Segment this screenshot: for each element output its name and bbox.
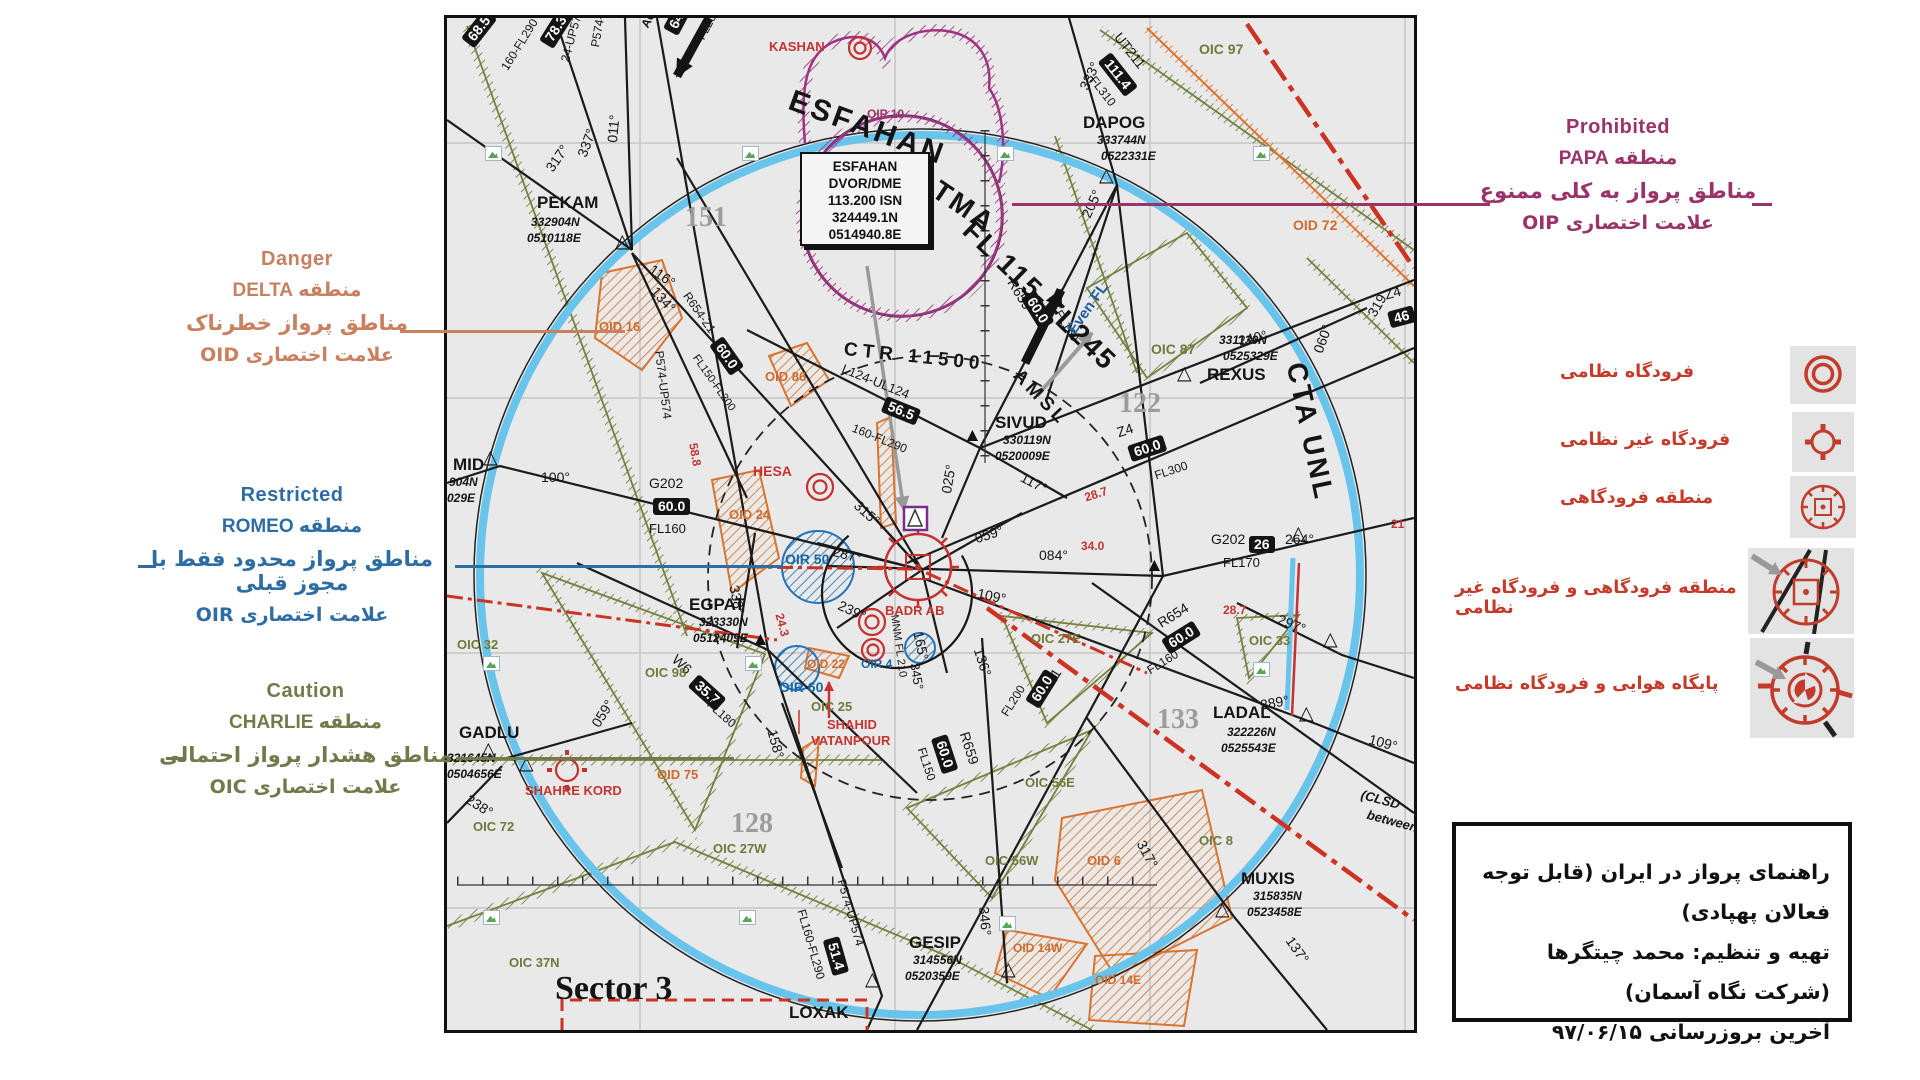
image-placeholder-glyph (1256, 667, 1266, 674)
map-label: 109° (1367, 732, 1399, 753)
annotation-abbr: علامت اختصاری OID (152, 344, 442, 366)
map-label: 28.7 (1083, 485, 1109, 504)
annotation-desc: مناطق پرواز به کلی ممنوع (1468, 179, 1768, 203)
map-label: 160-FL290 (851, 422, 909, 455)
annotation-title: Prohibited (1468, 116, 1768, 139)
map-label: OID 14W (1013, 942, 1062, 954)
map-label: 64.0 (663, 15, 695, 36)
map-label: 100° (541, 470, 570, 484)
map-label: 46 (1387, 305, 1416, 328)
map-label: G202 (1211, 532, 1245, 546)
map-label: OID 6 (1087, 854, 1121, 867)
map-label: 0520359E (905, 970, 960, 982)
map-label: OIC 25 (811, 700, 852, 713)
image-placeholder-glyph (745, 151, 755, 158)
map-label: 315° (852, 498, 883, 528)
map-label: 109° (976, 586, 1007, 606)
map-label: FL160-FL290 (795, 908, 826, 981)
image-placeholder-icon (483, 656, 500, 671)
image-placeholder-icon (485, 146, 502, 161)
map-label: 0525329E (1223, 350, 1278, 362)
map-label: 60.0 (709, 336, 744, 376)
pointer-line-restricted-tail (138, 565, 156, 568)
map-label: 025° (939, 463, 958, 494)
airbase-military-icon (1750, 638, 1854, 738)
waypoint-triangle: ▲ (751, 630, 770, 649)
map-label: LADAL (1213, 704, 1271, 721)
map-label: 0504656E (447, 768, 502, 780)
annotation-region: منطقه DELTA (152, 279, 442, 302)
map-label: 332904N (531, 216, 580, 228)
map-label: 122 (1119, 390, 1161, 418)
credits-line-1: راهنمای پرواز در ایران (قابل توجه فعالان… (1468, 852, 1830, 932)
map-label: EGPAT (689, 596, 745, 613)
navaid-lon: 0514940.8E (802, 226, 928, 243)
image-placeholder-glyph (488, 151, 498, 158)
map-label: Sector 3 (555, 972, 672, 1006)
map-label: 133 (1157, 706, 1199, 734)
map-label: 134° (649, 284, 679, 315)
map-label: 287° (831, 544, 863, 565)
map-label: OID 14E (1095, 974, 1141, 986)
credits-box: راهنمای پرواز در ایران (قابل توجه فعالان… (1452, 822, 1852, 1022)
map-label: OIC 72 (473, 820, 514, 833)
map-label: OID 24 (729, 508, 770, 521)
waypoint-triangle: △ (615, 232, 630, 251)
map-label: 34.0 (1081, 540, 1104, 552)
map-label: OID 22 (807, 658, 845, 670)
map-label: OIC 56W (985, 854, 1038, 867)
map-label: 21 (1391, 518, 1404, 530)
navaid-lat: 324449.1N (802, 209, 928, 226)
waypoint-triangle: △ (1291, 524, 1306, 543)
map-label: P574-R654 (589, 15, 611, 48)
map-label: OIC 8 (1199, 834, 1233, 847)
map-label: 158° (765, 728, 786, 760)
screenshot-page: 68.5160-FL29078.324-UP574P574-R654A6464.… (0, 0, 1920, 1080)
map-label: 160-FL290 (499, 17, 540, 73)
map-label: OIC 87 (1151, 342, 1195, 356)
map-label: 315835N (1253, 890, 1302, 902)
map-label: 060° (1311, 323, 1334, 355)
map-label: 60.0 (1025, 668, 1059, 709)
map-label: L124-UL124 (840, 362, 911, 401)
map-label: 58.8 (687, 442, 703, 467)
map-label: 345° (908, 662, 925, 691)
map-label: VATANPOUR (811, 734, 890, 747)
map-label: FL160 (649, 522, 686, 535)
annotation-title: Danger (152, 248, 442, 271)
map-label: SHAHID (827, 718, 877, 731)
map-label: A64 (639, 15, 660, 30)
map-label: OIC 32 (457, 638, 498, 651)
waypoint-triangle: △ (1177, 364, 1192, 383)
annotation-abbr: علامت اختصاری OIR (132, 604, 452, 626)
map-label: R654-Z1 (681, 290, 718, 335)
map-label: 239° (836, 598, 868, 623)
map-label: 0512409E (693, 632, 748, 644)
image-placeholder-glyph (748, 661, 758, 668)
map-label: SIVUD (995, 414, 1047, 431)
map-label: 26 (1249, 536, 1275, 553)
map-label: 330119N (1003, 434, 1051, 446)
pointer-line-caution-tail (166, 757, 186, 760)
waypoint-triangle: △ (865, 970, 880, 989)
credits-line-2: تهیه و تنظیم: محمد چیتگرها (شرکت نگاه آس… (1468, 932, 1830, 1012)
annotation-desc: مناطق پرواز محدود فقط با مجوز قبلی (132, 547, 452, 595)
map-label: OIC 33 (1249, 634, 1290, 647)
map-label: 904N (449, 476, 478, 488)
map-label: OID 86 (765, 370, 806, 383)
map-label: 346° (977, 906, 993, 936)
map-label: 60.0 (653, 498, 690, 515)
waypoint-triangle: ▲ (1145, 556, 1164, 575)
image-placeholder-glyph (1256, 151, 1266, 158)
map-label: 137° (1284, 934, 1312, 966)
pointer-line-prohibited-tail (1752, 203, 1772, 206)
map-label: OIC 27W (713, 842, 766, 855)
map-label: 322226N (1227, 726, 1276, 738)
navaid-name: ESFAHAN (802, 158, 928, 175)
map-label: FL160 (1145, 648, 1180, 676)
image-placeholder-glyph (1000, 151, 1010, 158)
map-label: DAPOG (1083, 114, 1145, 131)
navaid-type: DVOR/DME (802, 175, 928, 192)
map-label: 60.0 (1127, 434, 1168, 462)
chart-labels-layer: 68.5160-FL29078.324-UP574P574-R654A6464.… (447, 18, 1414, 1030)
map-label: 084° (1039, 548, 1068, 562)
map-label: FL200 (999, 683, 1027, 718)
image-placeholder-icon (745, 656, 762, 671)
pointer-line-danger (400, 330, 625, 333)
map-label: 0510118E (527, 232, 581, 244)
pointer-line-prohibited (1012, 203, 1490, 206)
image-placeholder-glyph (486, 661, 496, 668)
credits-line-3: آخرین بروزرسانی ۹۷/۰۶/۱۵ (1468, 1012, 1830, 1052)
map-label: OIC 56E (1025, 776, 1075, 789)
military-airport-icon (1790, 346, 1856, 404)
image-placeholder-glyph (486, 915, 496, 922)
navaid-freq: 113.200 ISN (802, 192, 928, 209)
map-label: CTA UNL (1282, 360, 1339, 504)
map-label: 333744N (1097, 134, 1146, 146)
map-label: 317° (1135, 838, 1161, 870)
map-label: Z4 (1383, 284, 1402, 302)
aeronautical-chart: 68.5160-FL29078.324-UP574P574-R654A6464.… (444, 15, 1417, 1033)
map-label: OIC 97 (1199, 42, 1243, 56)
map-label: OIC 27E (1031, 632, 1081, 645)
annotation-danger: Danger منطقه DELTA مناطق پرواز خطرناک عل… (152, 248, 442, 366)
civil-airport-icon (1792, 412, 1854, 472)
map-label: 56.5 (881, 396, 922, 426)
map-label: 0522331E (1101, 150, 1156, 162)
map-label: KASHAN (769, 40, 825, 53)
map-label: 51.4 (823, 936, 850, 976)
legend-label-civil-airport: فرودگاه غیر نظامی (1560, 430, 1782, 450)
annotation-prohibited: Prohibited منطقه PAPA مناطق پرواز به کلی… (1468, 116, 1768, 234)
image-placeholder-icon (483, 910, 500, 925)
map-label: 128 (731, 810, 773, 838)
map-label: FL200 (695, 15, 722, 42)
map-label: Z4 (1115, 421, 1135, 439)
map-label: 238° (464, 792, 496, 819)
annotation-title: Restricted (132, 484, 452, 507)
map-label: FL170 (1223, 556, 1260, 569)
pointer-line-restricted (455, 565, 782, 568)
map-label: 24.3 (773, 612, 791, 638)
map-label: REXUS (1207, 366, 1266, 383)
map-label: 136° (972, 646, 994, 678)
annotation-region: منطقه CHARLIE (158, 711, 453, 734)
image-placeholder-glyph (742, 915, 752, 922)
annotation-region: منطقه PAPA (1468, 147, 1768, 170)
waypoint-triangle: △ (1215, 900, 1230, 919)
map-label: MID (453, 456, 484, 473)
image-placeholder-icon (1253, 662, 1270, 677)
legend-label-airbase-military: پایگاه هوایی و فرودگاه نظامی (1455, 674, 1745, 694)
map-label: MUXIS (1241, 870, 1295, 887)
image-placeholder-icon (742, 146, 759, 161)
map-label: OIC 98 (645, 666, 686, 679)
image-placeholder-icon (739, 910, 756, 925)
map-label: OID 75 (657, 768, 698, 781)
map-label: 0523458E (1247, 906, 1302, 918)
map-label: 165° (911, 630, 931, 661)
waypoint-triangle: △ (1099, 166, 1114, 185)
map-label: OID 72 (1293, 218, 1337, 232)
waypoint-triangle: △ (1299, 704, 1314, 723)
map-label: 337° (575, 127, 598, 159)
map-label: 68.5 (461, 15, 497, 48)
image-placeholder-glyph (1002, 921, 1012, 928)
map-label: 323330N (699, 616, 748, 628)
map-label: R659 (958, 730, 982, 766)
legend-label-airport-zone-civil: منطقه فرودگاهی و فرودگاه غیر نظامی (1455, 578, 1745, 618)
airport-zone-icon (1790, 476, 1856, 538)
airport-zone-civil-icon (1748, 548, 1854, 634)
annotation-caution: Caution منطقه CHARLIE مناطق هشدار پرواز … (158, 680, 453, 798)
waypoint-triangle: △ (1001, 960, 1016, 979)
map-label: 059° (973, 523, 1005, 545)
waypoint-triangle: △ (1323, 630, 1338, 649)
waypoint-triangle: △ (483, 448, 498, 467)
map-label: P574-UP574 (835, 878, 865, 947)
map-label: between (1366, 808, 1417, 834)
map-label: G202 (649, 476, 683, 490)
map-label: PEKAM (537, 194, 598, 211)
map-label: OIR 60 (779, 680, 823, 694)
map-label: 117° (1018, 470, 1049, 495)
annotation-title: Caution (158, 680, 453, 703)
map-label: 0520009E (995, 450, 1050, 462)
annotation-region: منطقه ROMEO (132, 515, 452, 538)
map-label: 314556N (913, 954, 962, 966)
annotation-abbr: علامت اختصاری OIC (158, 776, 453, 798)
annotation-abbr: علامت اختصاری OIP (1468, 212, 1768, 234)
image-placeholder-icon (1253, 146, 1270, 161)
map-label: 011° (605, 114, 621, 143)
annotation-restricted: Restricted منطقه ROMEO مناطق پرواز محدود… (132, 484, 452, 626)
legend-label-military-airport: فرودگاه نظامی (1560, 362, 1782, 382)
map-label: OIR 50 (785, 552, 829, 566)
map-label: OIR 4 (861, 658, 892, 670)
map-label: FL300 (1153, 459, 1189, 481)
annotation-desc: مناطق پرواز خطرناک (152, 311, 442, 335)
legend-label-airport-zone: منطقه فرودگاهی (1560, 488, 1782, 508)
map-label: (CLSD (1360, 788, 1402, 811)
map-label: SHAHRE KORD (525, 784, 622, 797)
annotation-desc: مناطق هشدار پرواز احتمالی (158, 743, 453, 767)
map-label: LOXAK (789, 1004, 849, 1021)
map-label: 28.7 (1223, 604, 1246, 616)
map-label: 317° (543, 142, 571, 174)
map-label: 151 (685, 204, 727, 232)
map-label: 059° (589, 697, 616, 729)
pointer-line-caution (456, 757, 734, 760)
map-label: OIC 37N (509, 956, 560, 969)
map-label: HESA (753, 464, 792, 478)
map-label: 0525543E (1221, 742, 1276, 754)
map-label: GESIP (909, 934, 961, 951)
waypoint-triangle: ▲ (963, 426, 982, 445)
navaid-info-box: ESFAHAN DVOR/DME 113.200 ISN 324449.1N 0… (800, 152, 930, 246)
image-placeholder-icon (999, 916, 1016, 931)
image-placeholder-icon (997, 146, 1014, 161)
map-label: P574-UP574 (653, 350, 673, 420)
